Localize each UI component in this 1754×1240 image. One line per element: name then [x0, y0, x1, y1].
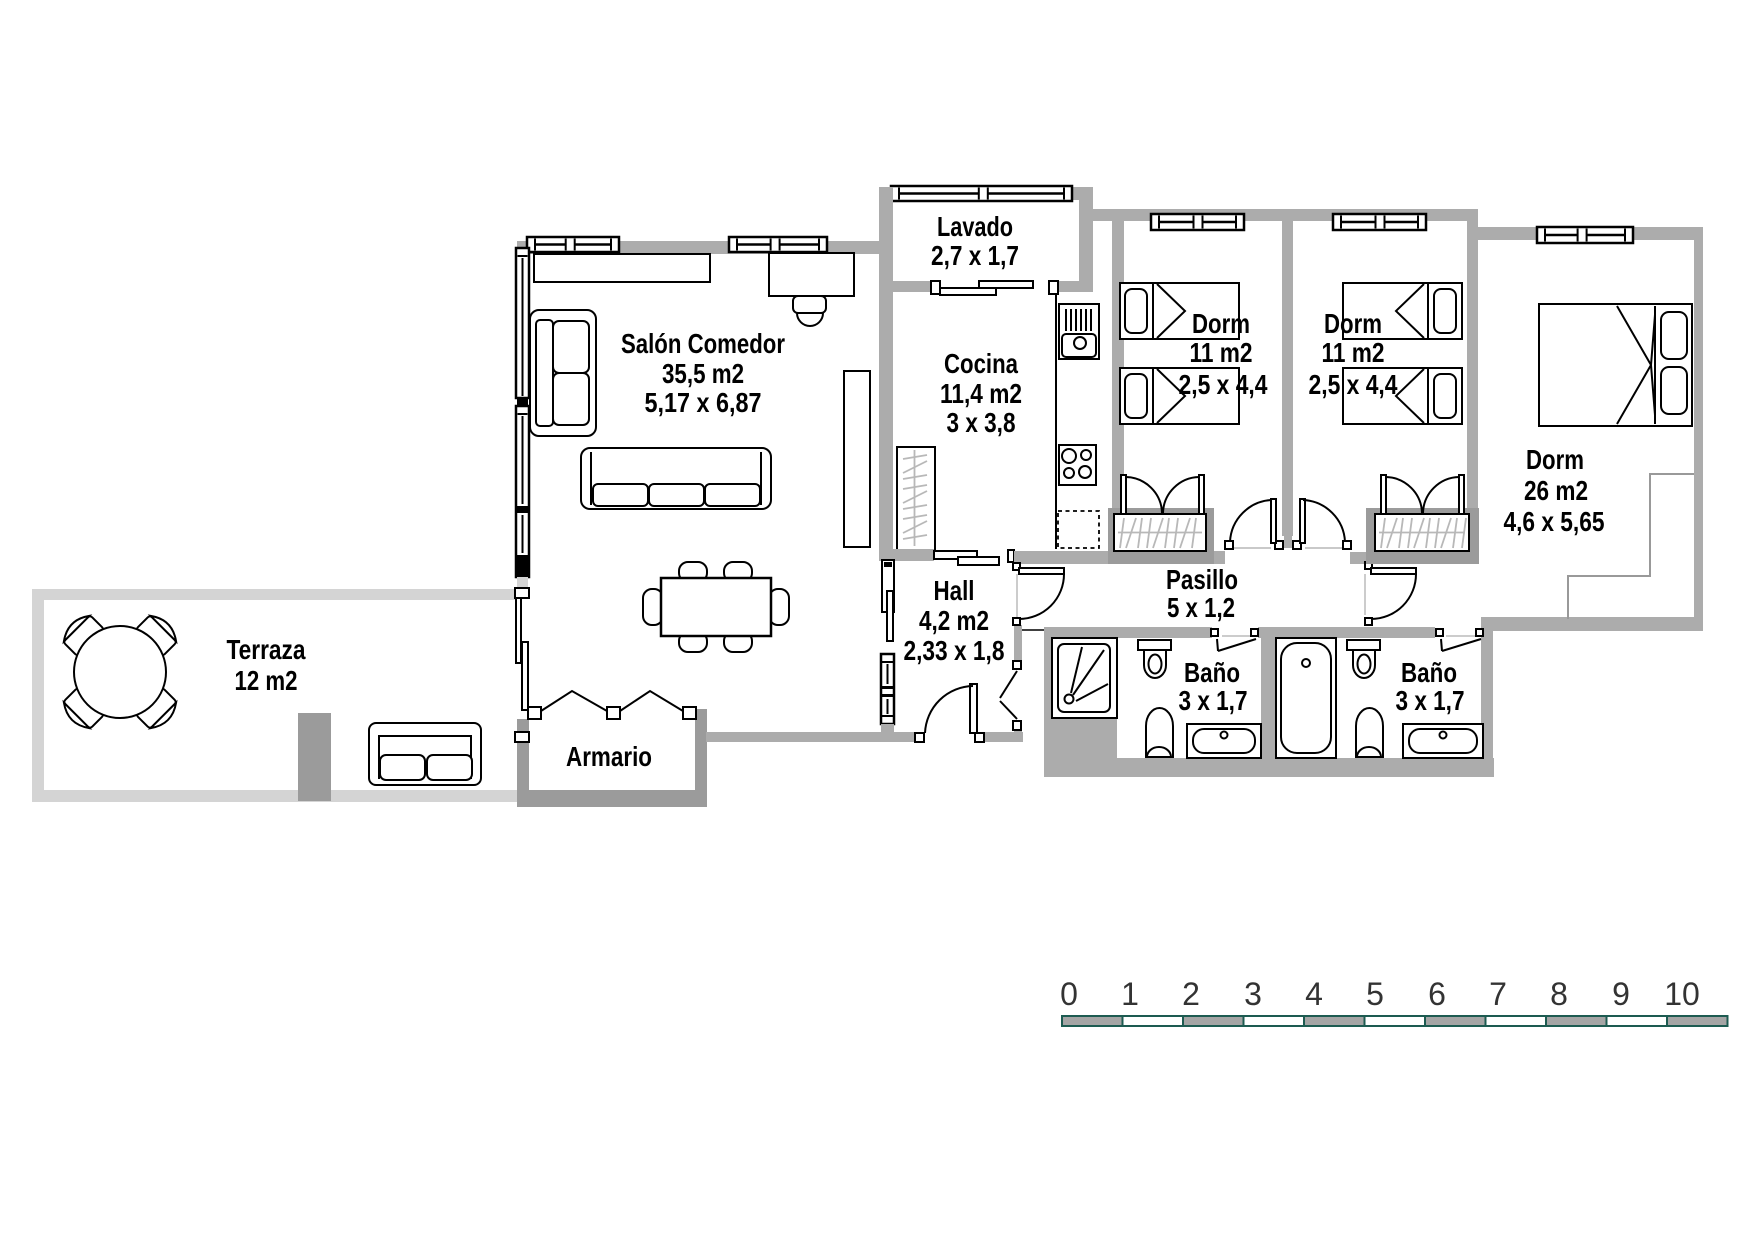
svg-text:8: 8: [1550, 976, 1568, 1012]
svg-text:3 x 1,7: 3 x 1,7: [1396, 685, 1465, 716]
svg-text:11 m2: 11 m2: [1322, 337, 1385, 368]
svg-text:Armario: Armario: [566, 741, 652, 772]
svg-text:5 x 1,2: 5 x 1,2: [1167, 592, 1235, 623]
svg-text:3: 3: [1244, 976, 1262, 1012]
svg-text:35,5 m2: 35,5 m2: [662, 358, 744, 389]
svg-text:11,4 m2: 11,4 m2: [940, 378, 1022, 409]
svg-text:Dorm: Dorm: [1192, 308, 1250, 339]
svg-text:Cocina: Cocina: [944, 348, 1018, 379]
svg-text:4,2 m2: 4,2 m2: [919, 605, 989, 636]
svg-text:Terraza: Terraza: [227, 634, 306, 665]
svg-text:Dorm: Dorm: [1324, 308, 1382, 339]
svg-text:10: 10: [1664, 976, 1700, 1012]
svg-text:12 m2: 12 m2: [235, 665, 298, 696]
svg-text:2: 2: [1182, 976, 1200, 1012]
svg-text:2,7 x 1,7: 2,7 x 1,7: [931, 240, 1019, 271]
svg-text:7: 7: [1489, 976, 1507, 1012]
svg-text:9: 9: [1612, 976, 1630, 1012]
svg-text:3 x 1,7: 3 x 1,7: [1179, 685, 1248, 716]
svg-text:3 x 3,8: 3 x 3,8: [947, 407, 1016, 438]
svg-text:Lavado: Lavado: [937, 211, 1013, 242]
svg-text:4,6 x 5,65: 4,6 x 5,65: [1504, 506, 1605, 537]
svg-text:Hall: Hall: [934, 575, 975, 606]
svg-text:26 m2: 26 m2: [1524, 475, 1588, 506]
svg-text:6: 6: [1428, 976, 1446, 1012]
svg-text:2,5 x 4,4: 2,5 x 4,4: [1309, 369, 1398, 400]
svg-text:Baño: Baño: [1184, 657, 1240, 688]
svg-text:Dorm: Dorm: [1526, 444, 1584, 475]
svg-text:4: 4: [1305, 976, 1323, 1012]
svg-text:0: 0: [1060, 976, 1078, 1012]
svg-text:2,5 x 4,4: 2,5 x 4,4: [1179, 369, 1268, 400]
svg-text:Pasillo: Pasillo: [1166, 564, 1238, 595]
svg-text:2,33 x 1,8: 2,33 x 1,8: [904, 635, 1005, 666]
svg-text:Salón Comedor: Salón Comedor: [621, 328, 785, 359]
svg-text:Baño: Baño: [1401, 657, 1457, 688]
svg-text:5,17 x 6,87: 5,17 x 6,87: [645, 387, 762, 418]
svg-text:5: 5: [1366, 976, 1384, 1012]
svg-text:1: 1: [1121, 976, 1139, 1012]
svg-text:11 m2: 11 m2: [1190, 337, 1253, 368]
